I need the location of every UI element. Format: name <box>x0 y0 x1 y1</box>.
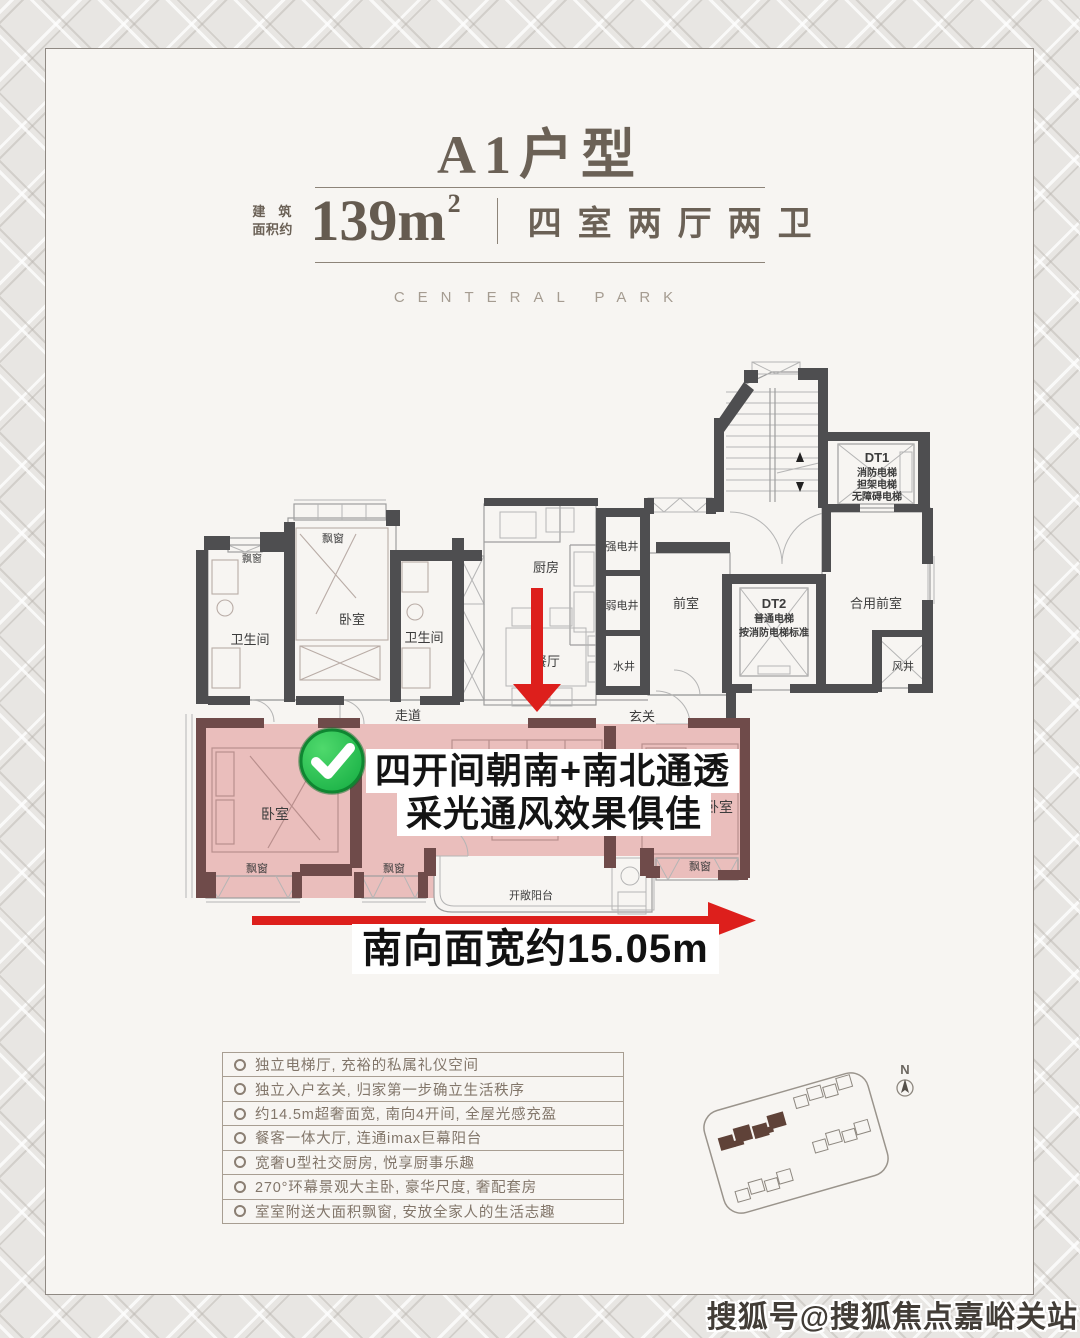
elevator-dt2-line2: 按消防电梯标准 <box>739 626 809 639</box>
room-label-bay-s: 飘窗 <box>383 861 405 875</box>
header-vertical-divider <box>497 198 498 244</box>
floor-plan: 飘窗 飘窗 卧室 卫生间 卫生间 厨房 餐厅 强电井 弱电井 水井 前室 合用前… <box>150 350 960 1010</box>
site-map-plot <box>700 1069 893 1218</box>
south-direction-arrow <box>513 588 561 712</box>
feature-row: 独立入户玄关, 归家第一步确立生活秩序 <box>223 1076 623 1100</box>
elevator-dt1-line2: 担架电梯 <box>857 478 897 491</box>
walls-dark <box>196 368 933 726</box>
feature-row: 宽奢U型社交厨房, 悦享厨事乐趣 <box>223 1150 623 1174</box>
elevator-dt1-name: DT1 <box>865 450 890 465</box>
area-superscript: 2 <box>448 189 461 218</box>
layout-text: 四室两厅两卫 <box>528 196 828 245</box>
room-label-wind-shaft: 风井 <box>892 659 914 673</box>
room-label-water-shaft: 水井 <box>613 659 635 673</box>
bullet-icon <box>234 1132 246 1144</box>
feature-text: 270°环幕景观大主卧, 豪华尺度, 奢配套房 <box>255 1176 537 1197</box>
bullet-icon <box>234 1205 246 1217</box>
room-label-front-room: 前室 <box>673 596 699 611</box>
room-label-balcony: 开敞阳台 <box>509 888 553 902</box>
feature-row: 约14.5m超奢面宽, 南向4开间, 全屋光感充盈 <box>223 1101 623 1125</box>
site-map: N <box>680 1050 970 1280</box>
bullet-icon <box>234 1083 246 1095</box>
room-label-bedroom-north: 卧室 <box>339 612 365 627</box>
room-label-bedroom-sw: 卧室 <box>261 806 289 822</box>
room-label-entry: 玄关 <box>629 709 655 724</box>
room-label-weak-shaft: 弱电井 <box>606 598 639 612</box>
brand-text: CENTERAL PARK <box>0 289 1080 306</box>
bullet-icon <box>234 1181 246 1193</box>
elevator-dt1-line3: 无障碍电梯 <box>851 490 902 503</box>
north-compass-icon: N <box>897 1062 913 1096</box>
room-label-bathroom-2: 卫生间 <box>404 630 443 645</box>
north-label: N <box>900 1062 909 1077</box>
features-list: 独立电梯厅, 充裕的私属礼仪空间 独立入户玄关, 归家第一步确立生活秩序 约14… <box>222 1052 624 1224</box>
feature-text: 宽奢U型社交厨房, 悦享厨事乐趣 <box>255 1152 475 1173</box>
room-label-bay-small: 飘窗 <box>242 552 262 565</box>
poster-page: A1户型 建筑 面积约 139m2 四室两厅两卫 CENTERAL PARK <box>0 0 1080 1338</box>
south-width-label: 南向面宽约15.05m <box>352 924 719 974</box>
feature-text: 室室附送大面积飘窗, 安放全家人的生活志趣 <box>255 1201 555 1222</box>
area-number: 139m <box>310 188 445 253</box>
room-label-bay-se: 飘窗 <box>689 859 711 873</box>
room-label-bathroom-1: 卫生间 <box>230 632 269 647</box>
callout-line-2: 采光通风效果俱佳 <box>397 792 711 836</box>
feature-row: 餐客一体大厅, 连通imax巨幕阳台 <box>223 1125 623 1149</box>
feature-text: 独立电梯厅, 充裕的私属礼仪空间 <box>255 1054 479 1075</box>
feature-text: 餐客一体大厅, 连通imax巨幕阳台 <box>255 1127 482 1148</box>
area-row: 建筑 面积约 139m2 四室两厅两卫 <box>0 191 1080 250</box>
header-divider-bottom <box>315 262 765 263</box>
feature-text: 约14.5m超奢面宽, 南向4开间, 全屋光感充盈 <box>255 1103 557 1124</box>
highlighted-buildings <box>715 1111 788 1150</box>
feature-text: 独立入户玄关, 归家第一步确立生活秩序 <box>255 1079 525 1100</box>
page-title: A1户型 <box>0 110 1080 189</box>
room-label-kitchen: 厨房 <box>533 560 559 575</box>
feature-row: 270°环幕景观大主卧, 豪华尺度, 奢配套房 <box>223 1174 623 1198</box>
watermark-text: 搜狐号@搜狐焦点嘉峪关站 <box>707 1292 1078 1336</box>
area-prefix: 建筑 面积约 <box>252 203 304 238</box>
area-value: 139m2 <box>310 191 460 250</box>
room-label-bay-sw: 飘窗 <box>246 861 268 875</box>
room-label-bay-top: 飘窗 <box>322 531 344 545</box>
feature-row: 室室附送大面积飘窗, 安放全家人的生活志趣 <box>223 1199 623 1223</box>
room-label-strong-shaft: 强电井 <box>606 539 639 553</box>
elevator-dt2-line1: 普通电梯 <box>754 612 794 625</box>
room-label-shared-front: 合用前室 <box>850 596 902 611</box>
bullet-icon <box>234 1156 246 1168</box>
elevator-dt1-line1: 消防电梯 <box>857 466 897 479</box>
bullet-icon <box>234 1059 246 1071</box>
area-prefix-line1: 建筑 <box>252 203 304 221</box>
bullet-icon <box>234 1108 246 1120</box>
room-label-corridor: 走道 <box>395 708 421 723</box>
check-badge-icon <box>299 728 365 794</box>
feature-row: 独立电梯厅, 充裕的私属礼仪空间 <box>223 1053 623 1076</box>
area-prefix-line2: 面积约 <box>252 221 304 239</box>
callout-line-1: 四开间朝南+南北通透 <box>366 749 739 793</box>
elevator-dt2-name: DT2 <box>762 596 787 611</box>
